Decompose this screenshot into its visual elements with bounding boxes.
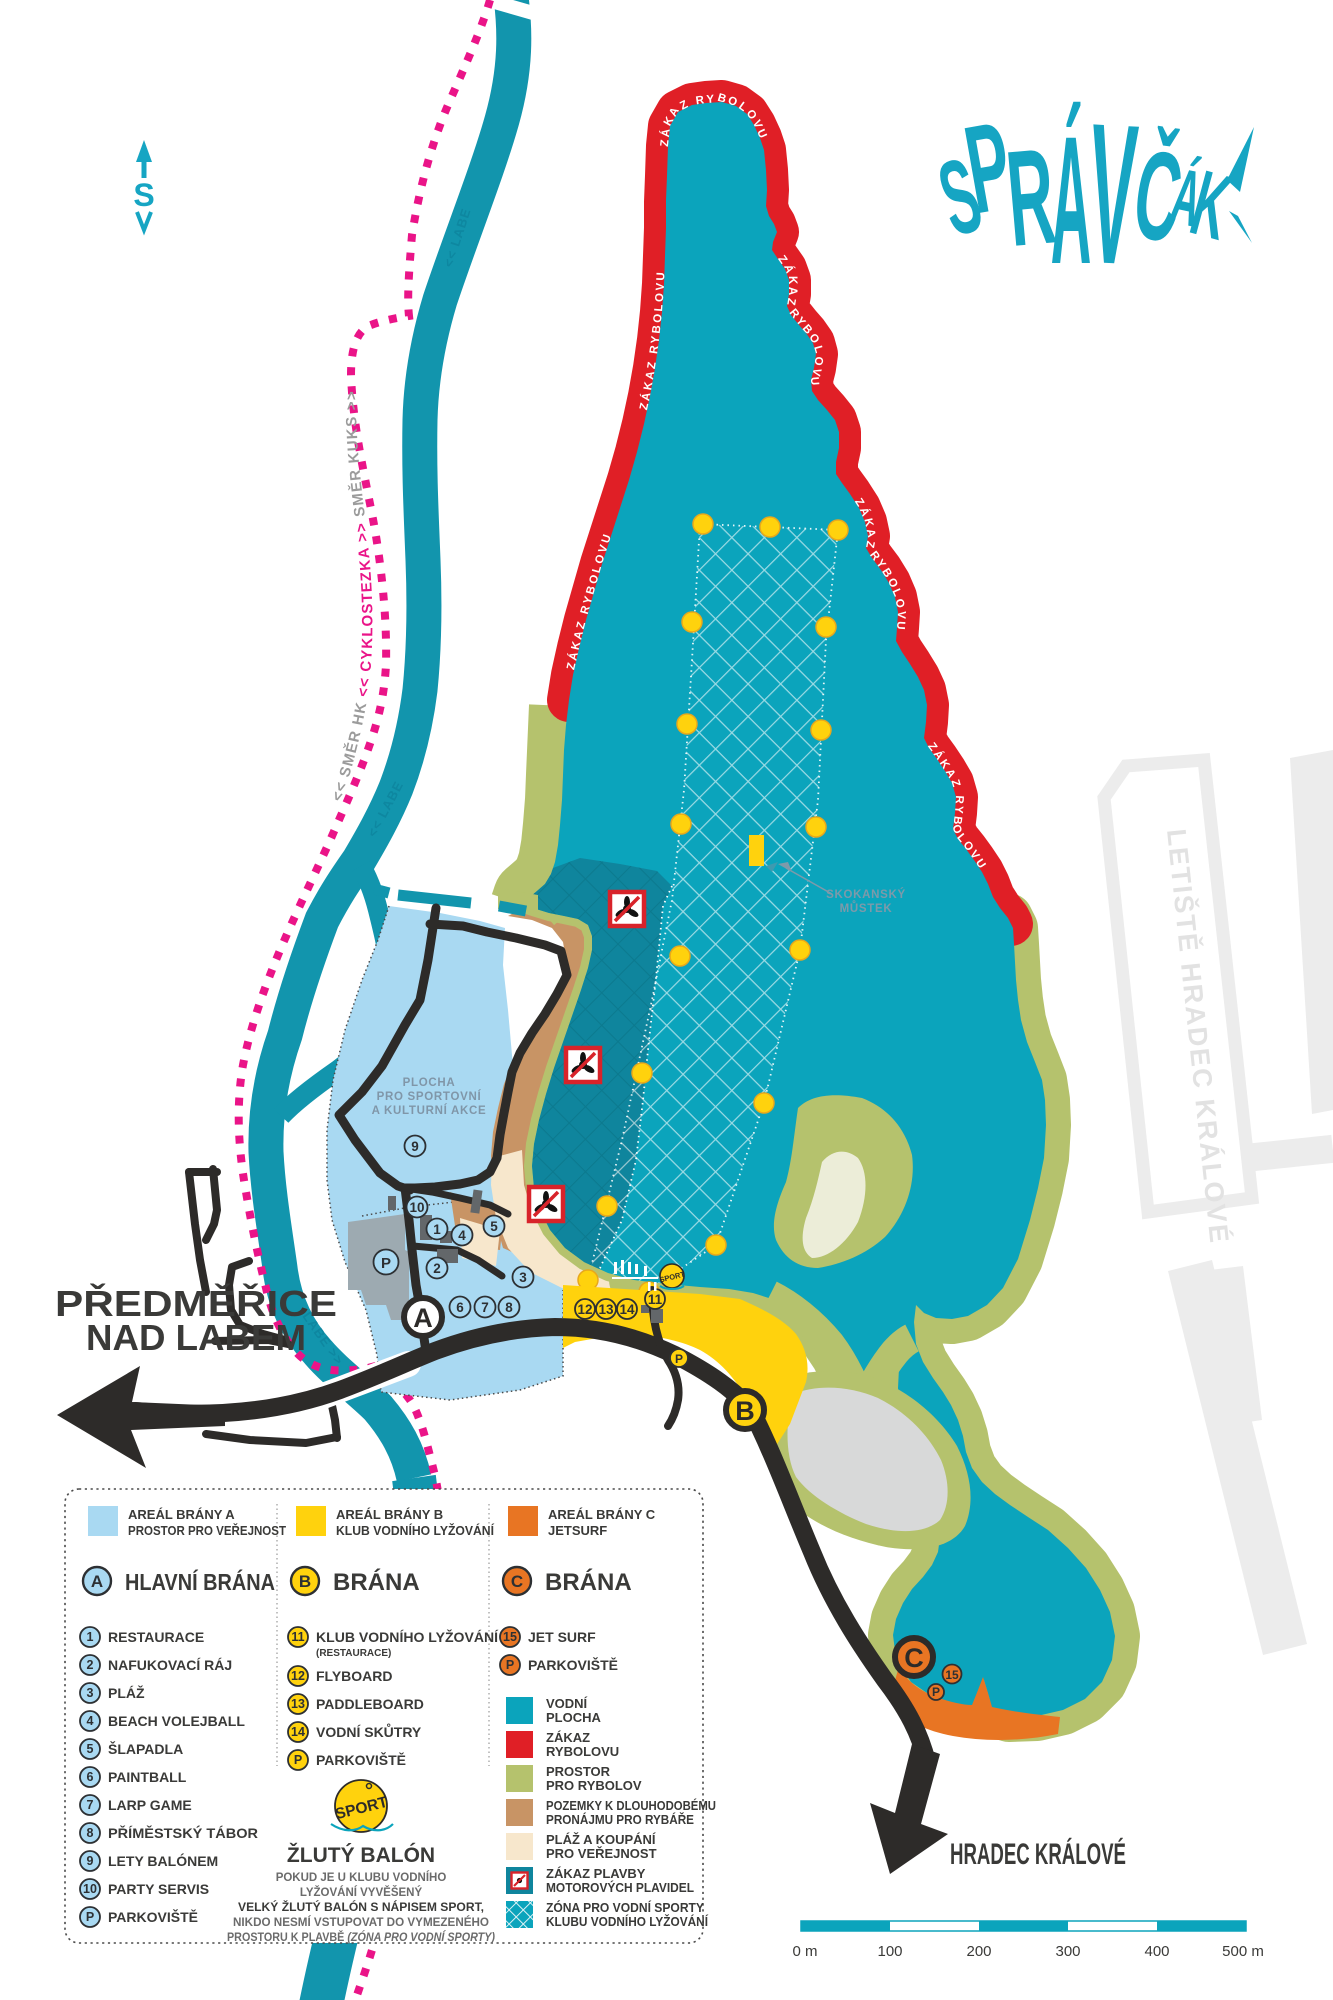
svg-text:5: 5 bbox=[87, 1742, 94, 1756]
svg-text:HRADEC KRÁLOVÉ: HRADEC KRÁLOVÉ bbox=[950, 1837, 1126, 1871]
svg-text:KLUB VODNÍHO LYŽOVÁNÍ: KLUB VODNÍHO LYŽOVÁNÍ bbox=[336, 1523, 494, 1538]
svg-text:BEACH VOLEJBALL: BEACH VOLEJBALL bbox=[108, 1713, 245, 1729]
svg-text:ZÁKAZ RYBOLOVU: ZÁKAZ RYBOLOVU bbox=[0, 0, 6, 3]
svg-text:9: 9 bbox=[411, 1139, 419, 1154]
svg-text:PLOCHA: PLOCHA bbox=[546, 1710, 602, 1725]
svg-text:PAINTBALL: PAINTBALL bbox=[108, 1769, 187, 1785]
svg-text:1: 1 bbox=[87, 1630, 94, 1644]
svg-text:ŠLAPADLA: ŠLAPADLA bbox=[108, 1740, 183, 1757]
svg-text:NIKDO NESMÍ VSTUPOVAT DO VYMEZ: NIKDO NESMÍ VSTUPOVAT DO VYMEZENÉHO bbox=[233, 1916, 489, 1929]
svg-text:PARKOVIŠTĚ: PARKOVIŠTĚ bbox=[108, 1908, 198, 1925]
svg-text:PARTY SERVIS: PARTY SERVIS bbox=[108, 1881, 209, 1897]
svg-text:VELKÝ ŽLUTÝ BALÓN S NÁPISEM SP: VELKÝ ŽLUTÝ BALÓN S NÁPISEM SPORT, bbox=[238, 1901, 484, 1914]
svg-text:2: 2 bbox=[433, 1261, 441, 1276]
svg-text:10: 10 bbox=[83, 1882, 97, 1896]
svg-text:JETSURF: JETSURF bbox=[548, 1523, 607, 1538]
svg-text:ZÓNA PRO VODNÍ SPORTY: ZÓNA PRO VODNÍ SPORTY bbox=[546, 1900, 704, 1915]
svg-text:AREÁL BRÁNY C: AREÁL BRÁNY C bbox=[548, 1507, 656, 1522]
svg-text:POKUD JE U KLUBU VODNÍHO: POKUD JE U KLUBU VODNÍHO bbox=[276, 1871, 447, 1884]
svg-text:9: 9 bbox=[87, 1854, 94, 1868]
svg-text:AREÁL BRÁNY B: AREÁL BRÁNY B bbox=[336, 1507, 443, 1522]
svg-text:1: 1 bbox=[433, 1222, 441, 1237]
svg-text:15: 15 bbox=[503, 1630, 517, 1644]
svg-text:(RESTAURACE): (RESTAURACE) bbox=[316, 1648, 391, 1659]
svg-text:4: 4 bbox=[458, 1228, 466, 1243]
svg-text:PRO VEŘEJNOST: PRO VEŘEJNOST bbox=[546, 1846, 657, 1861]
svg-text:LETY BALÓNEM: LETY BALÓNEM bbox=[108, 1852, 218, 1869]
svg-text:NAFUKOVACÍ RÁJ: NAFUKOVACÍ RÁJ bbox=[108, 1657, 232, 1673]
svg-text:5: 5 bbox=[490, 1219, 498, 1234]
svg-text:6: 6 bbox=[456, 1300, 464, 1315]
svg-text:8: 8 bbox=[87, 1826, 94, 1840]
svg-text:<< SMĚR HK << CYKLOSTEZKA >> S: << SMĚR HK << CYKLOSTEZKA >> SMĚR KUKS >… bbox=[329, 390, 377, 804]
svg-text:PARKOVIŠTĚ: PARKOVIŠTĚ bbox=[316, 1751, 406, 1768]
svg-text:P: P bbox=[381, 1255, 391, 1272]
svg-text:P: P bbox=[932, 1685, 940, 1699]
svg-text:RYBOLOVU: RYBOLOVU bbox=[546, 1744, 619, 1759]
svg-text:15: 15 bbox=[945, 1668, 959, 1682]
svg-text:0 m: 0 m bbox=[792, 1943, 817, 1960]
svg-text:PLÁŽ: PLÁŽ bbox=[108, 1684, 145, 1701]
svg-text:PROSTOR: PROSTOR bbox=[546, 1764, 611, 1779]
svg-text:P: P bbox=[506, 1658, 514, 1672]
svg-text:BRÁNA: BRÁNA bbox=[333, 1568, 420, 1596]
svg-text:14: 14 bbox=[291, 1725, 305, 1739]
svg-text:P: P bbox=[675, 1352, 683, 1366]
svg-text:10: 10 bbox=[409, 1200, 424, 1215]
svg-text:11: 11 bbox=[291, 1630, 304, 1644]
svg-text:KLUBU VODNÍHO LYŽOVÁNÍ: KLUBU VODNÍHO LYŽOVÁNÍ bbox=[546, 1914, 708, 1929]
svg-text:400: 400 bbox=[1144, 1943, 1169, 1960]
svg-text:7: 7 bbox=[87, 1798, 94, 1812]
svg-text:SKOKANSKÝ: SKOKANSKÝ bbox=[826, 888, 906, 901]
svg-text:AREÁL BRÁNY A: AREÁL BRÁNY A bbox=[128, 1507, 235, 1522]
svg-text:12: 12 bbox=[291, 1669, 305, 1683]
svg-text:200: 200 bbox=[966, 1943, 991, 1960]
svg-text:LARP GAME: LARP GAME bbox=[108, 1797, 192, 1813]
svg-text:KLUB VODNÍHO LYŽOVÁNÍ: KLUB VODNÍHO LYŽOVÁNÍ bbox=[316, 1628, 499, 1645]
svg-text:PRO SPORTOVNÍ: PRO SPORTOVNÍ bbox=[377, 1090, 482, 1103]
svg-text:13: 13 bbox=[291, 1697, 305, 1711]
svg-text:BRÁNA: BRÁNA bbox=[545, 1568, 632, 1596]
svg-text:ŽLUTÝ BALÓN: ŽLUTÝ BALÓN bbox=[287, 1843, 435, 1867]
svg-text:300: 300 bbox=[1055, 1943, 1080, 1960]
svg-text:HLAVNÍ BRÁNA: HLAVNÍ BRÁNA bbox=[125, 1568, 275, 1595]
svg-text:V: V bbox=[1083, 80, 1141, 306]
svg-text:VODNÍ: VODNÍ bbox=[546, 1696, 588, 1711]
svg-text:500 m: 500 m bbox=[1222, 1943, 1264, 1960]
svg-text:PRO RYBOLOV: PRO RYBOLOV bbox=[546, 1778, 642, 1793]
svg-text:A: A bbox=[91, 1572, 103, 1591]
svg-text:2: 2 bbox=[87, 1658, 94, 1672]
svg-text:PŘÍMĚSTSKÝ TÁBOR: PŘÍMĚSTSKÝ TÁBOR bbox=[108, 1824, 258, 1841]
svg-text:C: C bbox=[511, 1572, 523, 1591]
svg-text:ZÁKAZ: ZÁKAZ bbox=[546, 1730, 590, 1745]
svg-text:ZÁKAZ PLAVBY: ZÁKAZ PLAVBY bbox=[546, 1866, 646, 1881]
svg-text:PLOCHA: PLOCHA bbox=[403, 1077, 456, 1089]
svg-text:6: 6 bbox=[87, 1770, 94, 1784]
svg-text:3: 3 bbox=[519, 1270, 527, 1285]
svg-text:C: C bbox=[904, 1643, 924, 1673]
svg-text:7: 7 bbox=[481, 1300, 489, 1315]
svg-text:NAD LABEM: NAD LABEM bbox=[86, 1317, 306, 1358]
svg-text:PROSTORU K PLAVBĚ (ZÓNA PRO VO: PROSTORU K PLAVBĚ (ZÓNA PRO VODNÍ SPORTY… bbox=[227, 1931, 495, 1944]
svg-text:P: P bbox=[86, 1910, 94, 1924]
svg-text:100: 100 bbox=[877, 1943, 902, 1960]
svg-text:PLÁŽ A KOUPÁNÍ: PLÁŽ A KOUPÁNÍ bbox=[546, 1832, 656, 1847]
svg-text:4: 4 bbox=[87, 1714, 94, 1728]
svg-text:B: B bbox=[735, 1396, 755, 1426]
svg-text:RESTAURACE: RESTAURACE bbox=[108, 1629, 204, 1645]
svg-text:FLYBOARD: FLYBOARD bbox=[316, 1668, 393, 1684]
svg-text:14: 14 bbox=[619, 1302, 635, 1317]
svg-text:VODNÍ SKŮTRY: VODNÍ SKŮTRY bbox=[316, 1722, 422, 1740]
svg-text:PARKOVIŠTĚ: PARKOVIŠTĚ bbox=[528, 1656, 618, 1673]
svg-text:MOTOROVÝCH PLAVIDEL: MOTOROVÝCH PLAVIDEL bbox=[546, 1880, 694, 1895]
svg-text:POZEMKY K DLOUHODOBÉMU: POZEMKY K DLOUHODOBÉMU bbox=[546, 1798, 716, 1813]
svg-text:PRONÁJMU PRO RYBÁŘE: PRONÁJMU PRO RYBÁŘE bbox=[546, 1812, 694, 1827]
svg-text:B: B bbox=[299, 1572, 311, 1591]
svg-text:A: A bbox=[413, 1303, 433, 1333]
svg-text:S: S bbox=[133, 177, 154, 213]
svg-text:P: P bbox=[294, 1753, 302, 1767]
svg-text:A KULTURNÍ AKCE: A KULTURNÍ AKCE bbox=[372, 1104, 487, 1117]
svg-text:3: 3 bbox=[87, 1686, 94, 1700]
svg-text:11: 11 bbox=[648, 1292, 663, 1307]
svg-text:8: 8 bbox=[505, 1300, 513, 1315]
svg-text:12: 12 bbox=[577, 1302, 592, 1317]
svg-text:MŮSTEK: MŮSTEK bbox=[840, 901, 893, 915]
svg-text:13: 13 bbox=[598, 1302, 614, 1317]
svg-text:PADDLEBOARD: PADDLEBOARD bbox=[316, 1696, 424, 1712]
svg-text:PROSTOR PRO VEŘEJNOST: PROSTOR PRO VEŘEJNOST bbox=[128, 1523, 286, 1538]
svg-text:JET SURF: JET SURF bbox=[528, 1629, 596, 1645]
svg-text:LYŽOVÁNÍ VYVĚŠENÝ: LYŽOVÁNÍ VYVĚŠENÝ bbox=[300, 1886, 423, 1899]
